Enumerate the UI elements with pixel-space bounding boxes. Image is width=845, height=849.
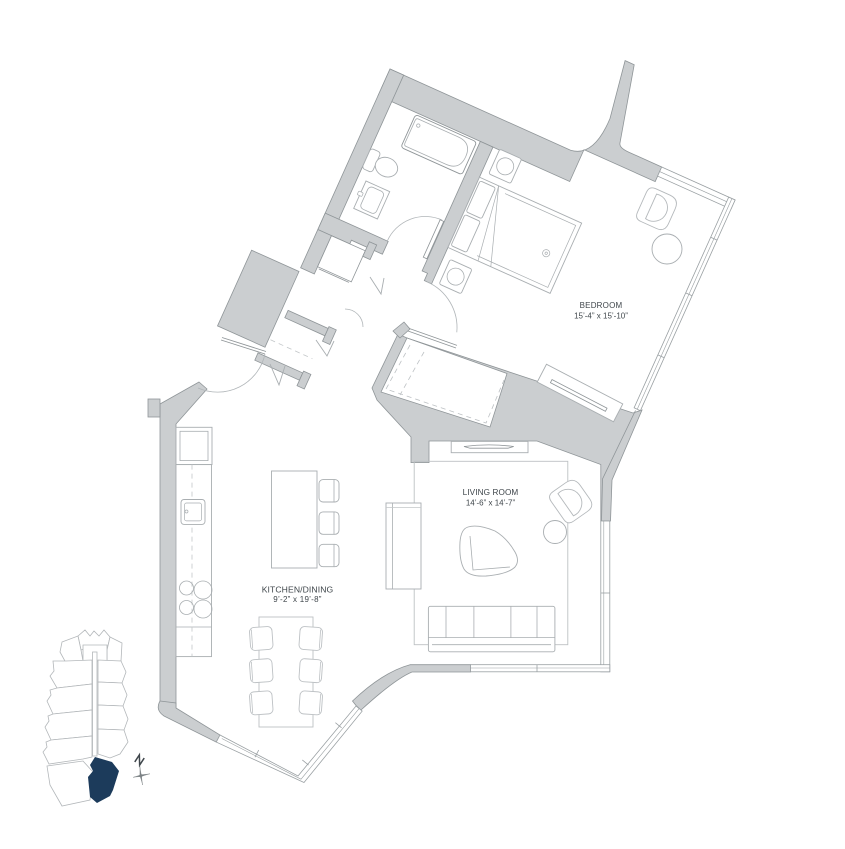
- svg-text:BEDROOM: BEDROOM: [580, 301, 623, 310]
- svg-text:15’-4” x 15’-10”: 15’-4” x 15’-10”: [574, 311, 628, 320]
- svg-text:LIVING ROOM: LIVING ROOM: [463, 488, 519, 497]
- svg-text:KITCHEN/DINING: KITCHEN/DINING: [262, 585, 334, 595]
- svg-text:9’-2” x 19’-8”: 9’-2” x 19’-8”: [273, 595, 321, 604]
- svg-text:14’-6” x 14’-7”: 14’-6” x 14’-7”: [466, 498, 516, 507]
